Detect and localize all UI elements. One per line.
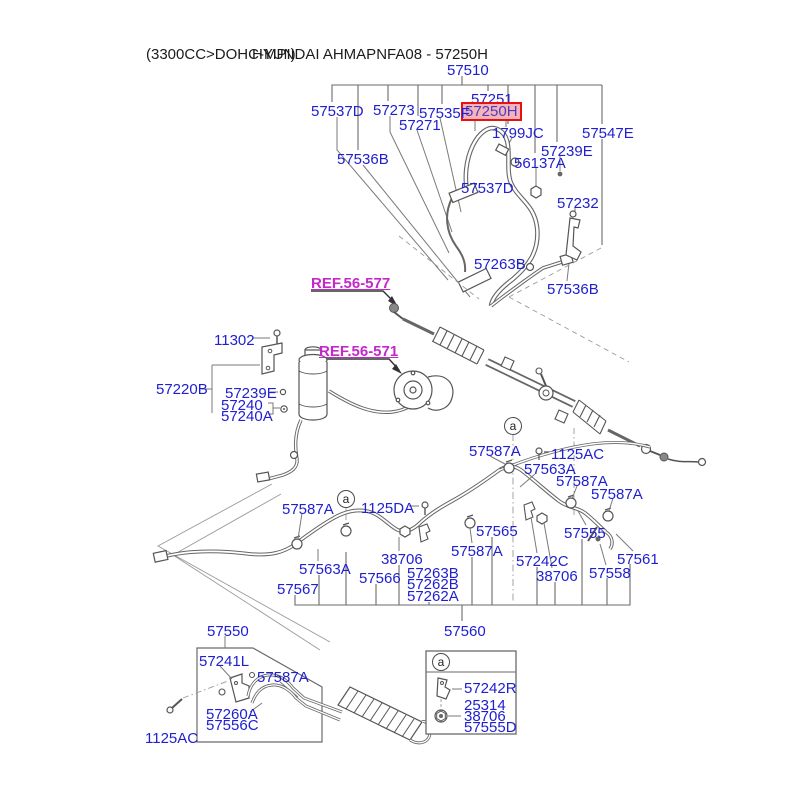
part-label-57567[interactable]: 57567 <box>277 582 319 597</box>
part-label-57536b[interactable]: 57536B <box>547 282 599 297</box>
part-label-57587a[interactable]: 57587A <box>282 502 334 517</box>
part-label-1125da[interactable]: 1125DA <box>361 501 414 516</box>
part-label-57565[interactable]: 57565 <box>476 524 518 539</box>
ref-arrow-56-577 <box>311 291 398 307</box>
part-label-57587a[interactable]: 57587A <box>591 487 643 502</box>
part-label-1125ac[interactable]: 1125AC <box>551 447 604 462</box>
catalog-title: HYUNDAI AHMAPNFA08 - 57250H <box>252 46 488 63</box>
part-label-57537d[interactable]: 57537D <box>461 181 514 196</box>
part-label-57537d[interactable]: 57537D <box>311 104 364 119</box>
part-label-57560[interactable]: 57560 <box>444 624 486 639</box>
part-label-57241l[interactable]: 57241L <box>199 654 249 669</box>
part-label-57556c[interactable]: 57556C <box>206 718 259 733</box>
part-label-57263b[interactable]: 57263B <box>474 257 526 272</box>
part-label-57555[interactable]: 57555 <box>564 526 606 541</box>
ref-link-ref-56-577[interactable]: REF.56-577 <box>311 276 390 291</box>
part-label-57242r[interactable]: 57242R <box>464 681 517 696</box>
callout-marker-a: a <box>504 417 522 435</box>
ref-link-ref-56-571[interactable]: REF.56-571 <box>319 344 398 359</box>
callout-marker-a: a <box>432 653 450 671</box>
part-label-57273[interactable]: 57273 <box>373 103 415 118</box>
part-label-57232[interactable]: 57232 <box>557 196 599 211</box>
part-label-57510[interactable]: 57510 <box>447 63 489 78</box>
part-label-57271[interactable]: 57271 <box>399 118 441 133</box>
part-label-57250h[interactable]: 57250H <box>461 102 522 121</box>
part-label-57587a[interactable]: 57587A <box>451 544 503 559</box>
part-label-57242c[interactable]: 57242C <box>516 554 569 569</box>
part-label-57550[interactable]: 57550 <box>207 624 249 639</box>
part-label-11302[interactable]: 11302 <box>214 333 255 348</box>
part-label-57558[interactable]: 57558 <box>589 566 631 581</box>
phantom-lines <box>158 236 629 650</box>
part-label-57587a[interactable]: 57587A <box>257 670 309 685</box>
part-label-56137a[interactable]: 56137A <box>514 156 566 171</box>
part-label-57563a[interactable]: 57563A <box>299 562 351 577</box>
part-label-57240a[interactable]: 57240A <box>221 409 273 424</box>
part-label-38706[interactable]: 38706 <box>536 569 578 584</box>
part-label-57566[interactable]: 57566 <box>359 571 401 586</box>
part-label-1799jc[interactable]: 1799JC <box>492 126 544 141</box>
pump-drawing <box>394 371 453 410</box>
part-label-57220b[interactable]: 57220B <box>156 382 208 397</box>
part-label-57555d[interactable]: 57555D <box>464 720 517 735</box>
part-label-57262a[interactable]: 57262A <box>407 589 459 604</box>
callout-marker-a: a <box>337 490 355 508</box>
parts-diagram-page: (3300CC>DOHC-MPI) HYUNDAI AHMAPNFA08 - 5… <box>0 0 800 800</box>
part-label-57547e[interactable]: 57547E <box>582 126 634 141</box>
part-label-57536b[interactable]: 57536B <box>337 152 389 167</box>
ref-arrow-56-571 <box>319 359 402 374</box>
part-label-1125ac[interactable]: 1125AC <box>145 731 198 746</box>
part-label-57587a[interactable]: 57587A <box>469 444 521 459</box>
